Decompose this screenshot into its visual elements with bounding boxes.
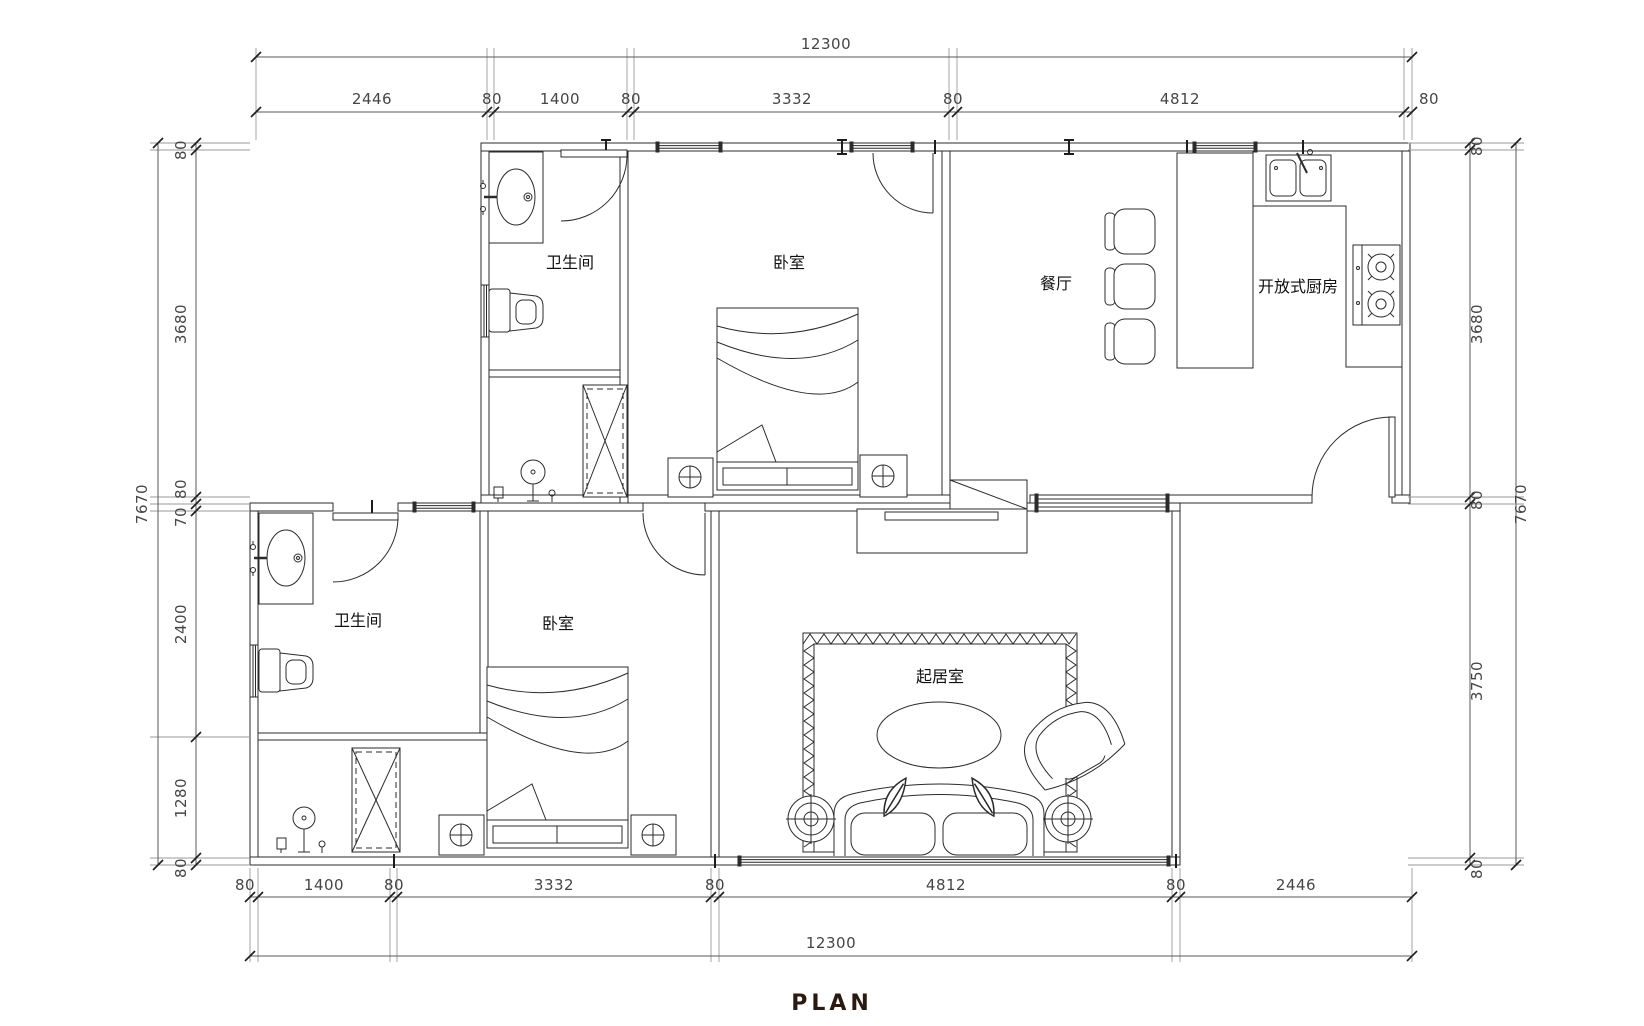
dimension-label: 80: [1468, 859, 1486, 879]
door-bedroom-lower: [643, 513, 705, 575]
wall-bathroom-upper-partition: [489, 370, 620, 377]
dimension-label: 2400: [172, 604, 190, 644]
kitchen-stove: [1353, 245, 1400, 325]
floor-plan-page: 卫生间 卧室 餐厅 开放式厨房 卫生间 卧室 起居室 1230024468014…: [0, 0, 1644, 1026]
window-top-2: [850, 142, 914, 152]
kitchen-sink: [1266, 150, 1331, 202]
dimension-label: 3332: [772, 90, 812, 108]
dining-chairs: [1105, 209, 1155, 364]
window-top-1: [656, 142, 722, 152]
wall-lower-top-3: [473, 503, 643, 511]
dimension-label: 80: [482, 90, 502, 108]
dimension-label: 1400: [540, 90, 580, 108]
wall-vent-upper: [481, 285, 489, 337]
bed-lower: [487, 667, 628, 848]
label-dining: 餐厅: [1040, 274, 1072, 293]
sink-upper: [481, 152, 544, 243]
chair-3: [1105, 319, 1155, 364]
door-bathroom-lower: [333, 513, 398, 582]
door-bedroom-upper: [873, 153, 933, 213]
entry-shoe-cabinet: [950, 480, 1027, 509]
floor-lamp-lower: [277, 807, 325, 853]
label-bathroom-lower: 卫生间: [334, 611, 382, 630]
label-kitchen: 开放式厨房: [1258, 277, 1338, 296]
label-living: 起居室: [916, 667, 964, 686]
bedroom-upper-furniture: [668, 308, 907, 497]
dimension-label: 7670: [1512, 484, 1530, 524]
dimension-label: 1400: [304, 876, 344, 894]
wall-bathroom-lower-partition: [258, 733, 487, 740]
bed-upper: [717, 308, 858, 490]
wall-lower-top-2: [398, 503, 415, 511]
dimension-label: 2446: [1276, 876, 1316, 894]
window-shared-passthrough: [1035, 494, 1169, 512]
dimension-label: 80: [172, 858, 190, 878]
label-bathroom-upper: 卫生间: [546, 253, 594, 272]
dining-kitchen-furniture: [857, 150, 1402, 554]
dimension-label: 2446: [352, 90, 392, 108]
wall-lower-top-1: [250, 503, 333, 511]
wall-bedroom-lower-right: [711, 511, 719, 857]
dimension-label: 80: [621, 90, 641, 108]
toilet-upper: [489, 289, 543, 332]
toilet-lower: [259, 649, 313, 692]
dimension-label: 80: [705, 876, 725, 894]
wardrobe-lower: [352, 748, 400, 852]
window-lower-top: [413, 502, 475, 512]
dimension-label: 12300: [806, 934, 856, 952]
wall-bedroom-upper-right: [942, 151, 950, 495]
nightstand-upper-left: [668, 458, 713, 497]
nightstand-upper-right: [860, 455, 907, 497]
chair-1: [1105, 209, 1155, 254]
bedroom-lower-furniture: [439, 667, 676, 855]
wall-lower-right: [1172, 511, 1180, 865]
window-kitchen: [1193, 142, 1257, 152]
dimension-label: 4812: [1160, 90, 1200, 108]
dimension-label: 80: [1468, 490, 1486, 510]
dimension-label: 7670: [133, 484, 151, 524]
drawing-title: PLAN: [791, 991, 873, 1016]
dimension-label: 80: [1468, 136, 1486, 156]
dimension-label: 80: [1419, 90, 1439, 108]
door-bathroom-upper: [561, 150, 627, 221]
dimension-label: 4812: [926, 876, 966, 894]
dimension-label: 1280: [172, 778, 190, 818]
nightstand-lower-right: [631, 815, 676, 855]
tv-console: [857, 509, 1027, 553]
dimension-label: 80: [172, 140, 190, 160]
floor-plan-canvas: 卫生间 卧室 餐厅 开放式厨房 卫生间 卧室 起居室 1230024468014…: [0, 0, 1644, 1026]
coffee-table: [877, 702, 1001, 768]
wall-upper-right: [1402, 151, 1410, 503]
dimension-label: 80: [384, 876, 404, 894]
wardrobe-upper: [583, 385, 627, 497]
dimension-label: 80: [1166, 876, 1186, 894]
dimension-label: 80: [172, 479, 190, 499]
dimension-label: 80: [235, 876, 255, 894]
window-living-bottom: [738, 856, 1170, 866]
dimension-label: 80: [943, 90, 963, 108]
label-bedroom-lower: 卧室: [542, 614, 574, 633]
door-entry: [1312, 417, 1395, 497]
nightstand-lower-left: [439, 815, 484, 855]
dimension-label: 12300: [801, 35, 851, 53]
label-bedroom-upper: 卧室: [773, 253, 805, 272]
sink-lower: [251, 513, 314, 604]
dimension-label: 3680: [1468, 304, 1486, 344]
chair-2: [1105, 264, 1155, 309]
kitchen-island: [1177, 153, 1253, 368]
dimension-label: 3750: [1468, 661, 1486, 701]
dimension-label: 3332: [534, 876, 574, 894]
dimension-label: 3680: [172, 304, 190, 344]
wall-vent-lower: [250, 645, 258, 697]
dimension-label: 70: [172, 507, 190, 527]
